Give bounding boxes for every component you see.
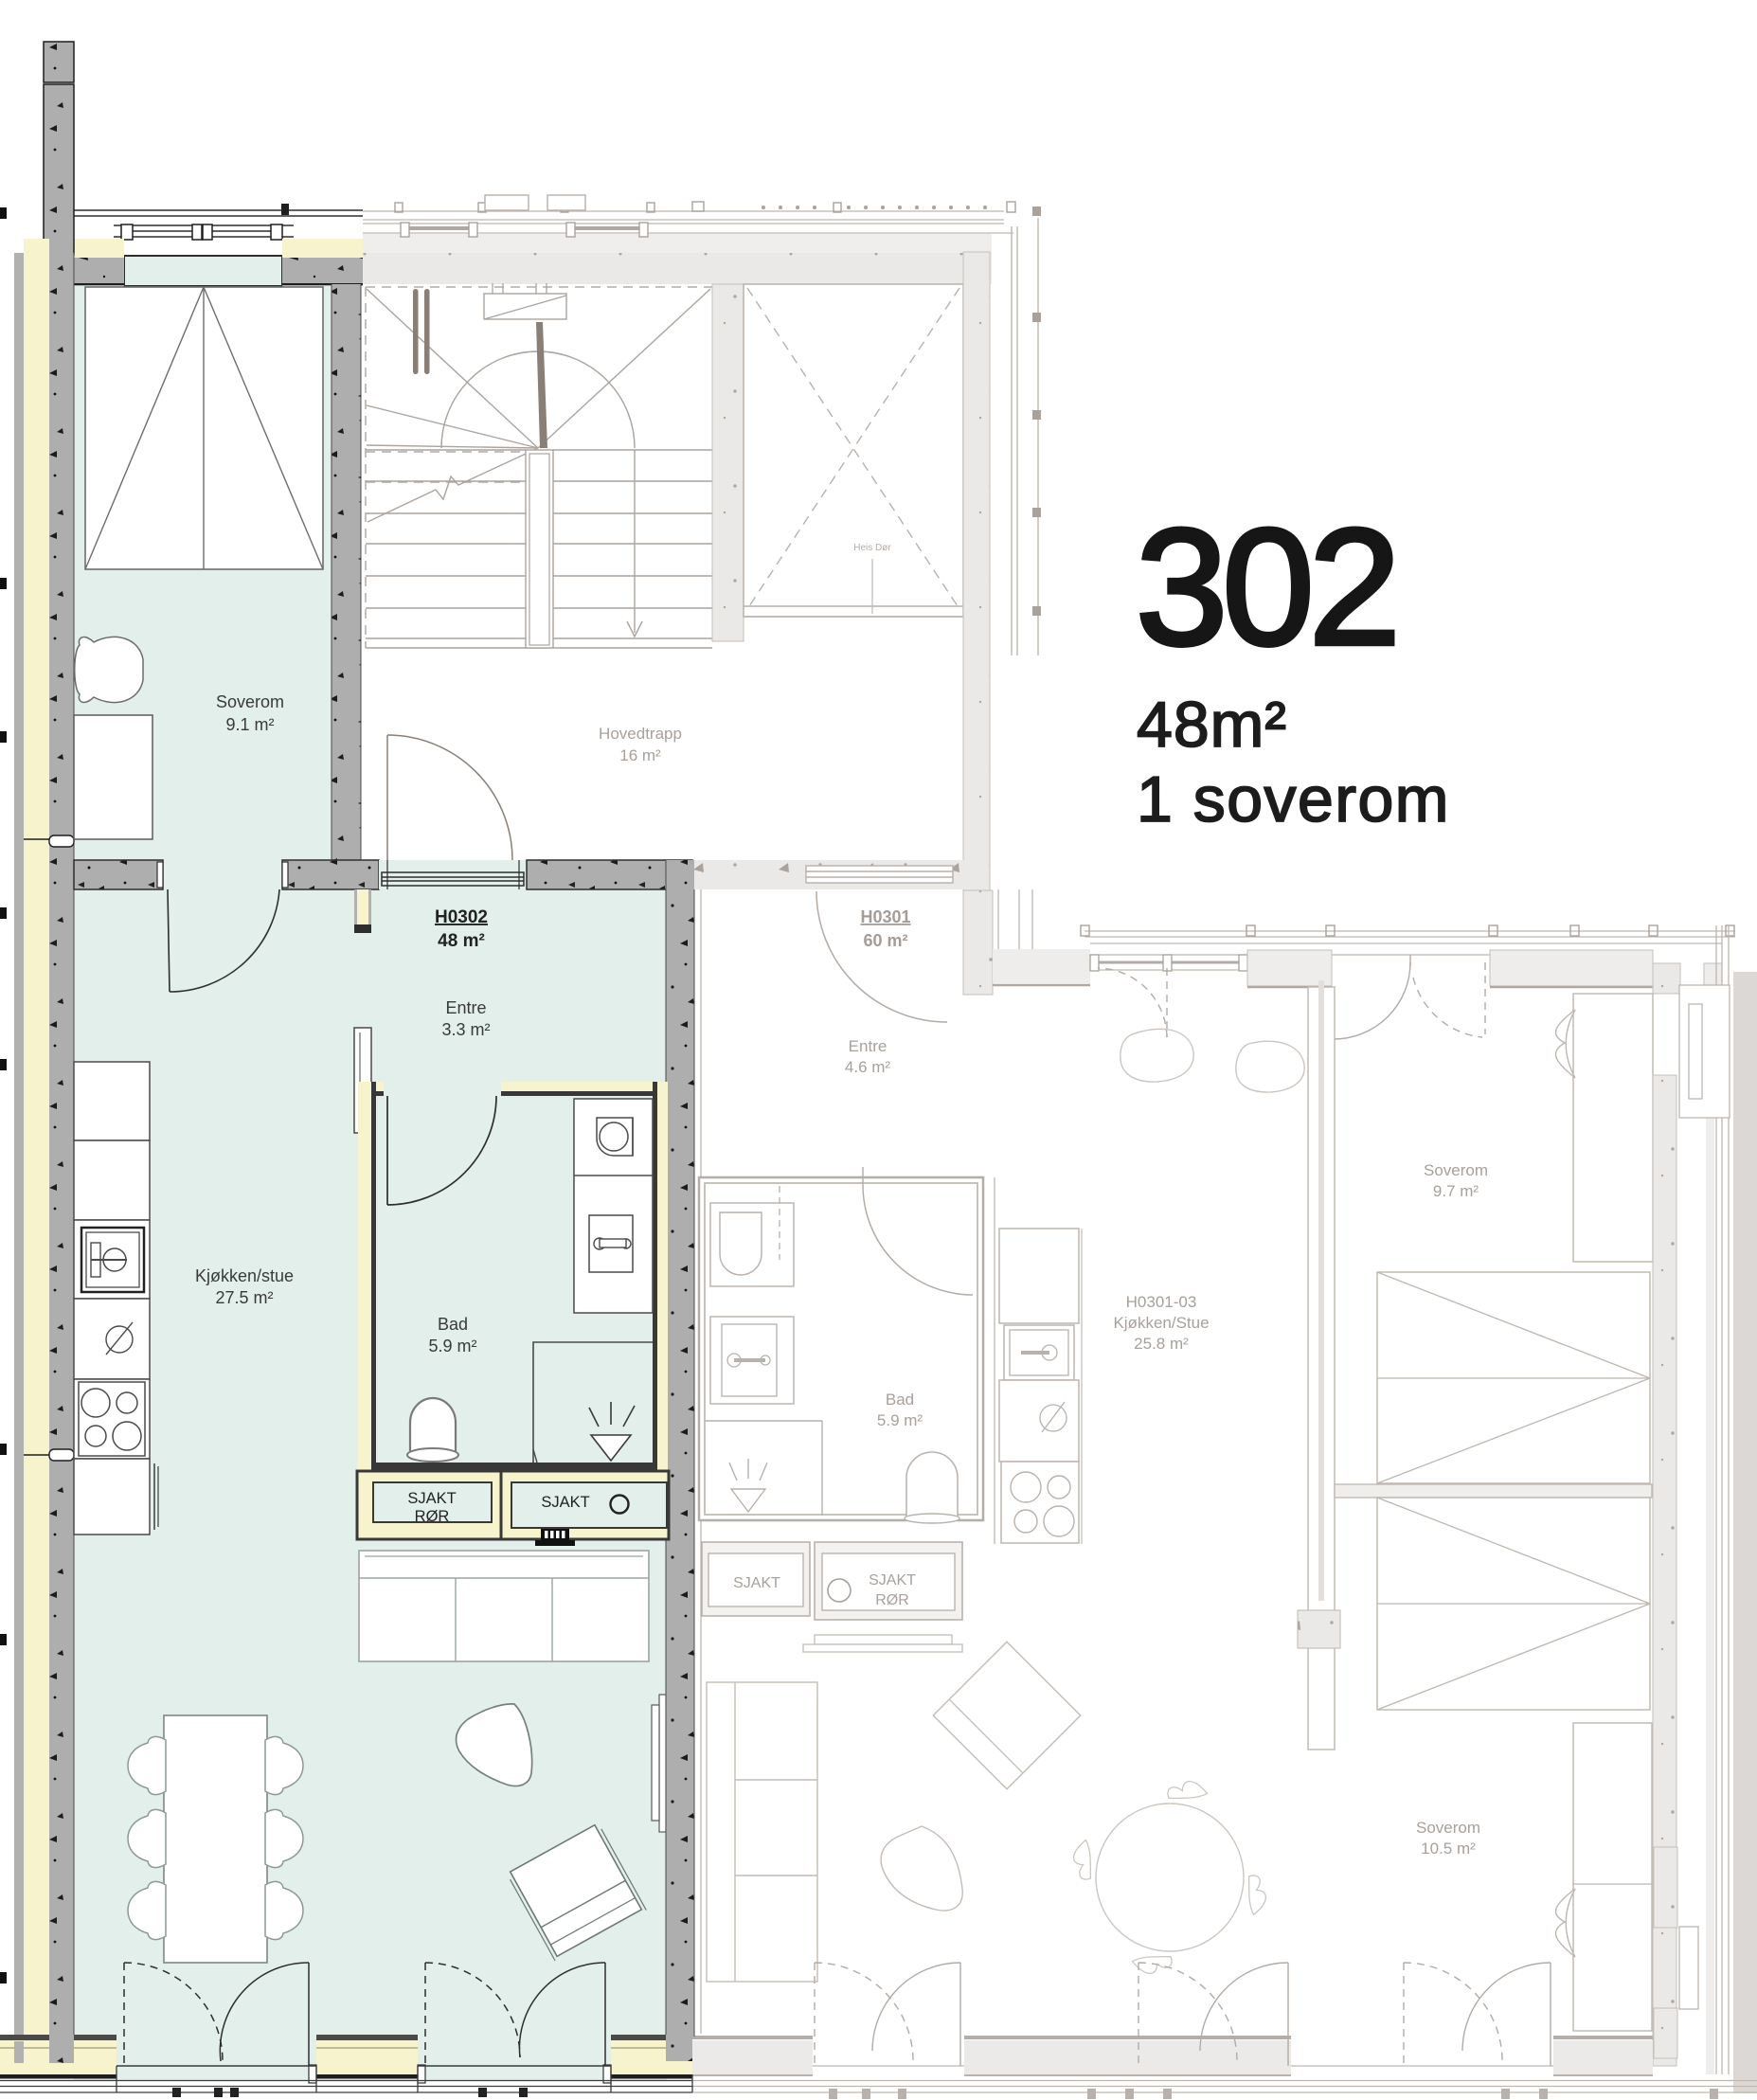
svg-text:H0301: H0301: [860, 907, 910, 926]
svg-text:SJAKT: SJAKT: [869, 1572, 916, 1588]
svg-text:48m²: 48m²: [1137, 689, 1287, 761]
svg-text:27.5 m²: 27.5 m²: [215, 1288, 273, 1307]
svg-text:9.1 m²: 9.1 m²: [225, 715, 274, 734]
svg-text:60 m²: 60 m²: [863, 931, 907, 950]
svg-text:5.9 m²: 5.9 m²: [428, 1337, 476, 1355]
svg-text:Kjøkken/stue: Kjøkken/stue: [195, 1266, 294, 1285]
svg-text:48 m²: 48 m²: [438, 931, 485, 951]
svg-text:Soverom: Soverom: [1424, 1161, 1488, 1179]
svg-text:25.8 m²: 25.8 m²: [1134, 1335, 1189, 1353]
svg-text:Entre: Entre: [849, 1037, 887, 1055]
svg-text:5.9 m²: 5.9 m²: [877, 1411, 923, 1429]
svg-text:Soverom: Soverom: [1416, 1819, 1480, 1837]
svg-text:SJAKT: SJAKT: [733, 1575, 780, 1591]
svg-text:RØR: RØR: [875, 1592, 909, 1608]
svg-text:4.6 m²: 4.6 m²: [845, 1058, 891, 1076]
svg-text:SJAKT: SJAKT: [541, 1494, 589, 1511]
svg-text:Entre: Entre: [445, 998, 486, 1017]
svg-text:Kjøkken/Stue: Kjøkken/Stue: [1113, 1314, 1209, 1332]
svg-text:1 soverom: 1 soverom: [1137, 763, 1450, 835]
svg-text:H0302: H0302: [435, 907, 488, 927]
svg-text:H0301-03: H0301-03: [1126, 1293, 1197, 1311]
svg-text:302: 302: [1136, 495, 1395, 680]
svg-text:SJAKT: SJAKT: [407, 1490, 456, 1507]
svg-text:3.3 m²: 3.3 m²: [441, 1020, 490, 1039]
svg-text:9.7 m²: 9.7 m²: [1433, 1182, 1479, 1200]
svg-text:10.5 m²: 10.5 m²: [1421, 1840, 1476, 1858]
svg-text:Soverom: Soverom: [216, 692, 284, 711]
svg-text:Heis Dør: Heis Dør: [853, 543, 891, 553]
svg-text:16 m²: 16 m²: [619, 746, 661, 764]
svg-text:Bad: Bad: [438, 1315, 468, 1334]
svg-text:Hovedtrapp: Hovedtrapp: [599, 725, 682, 743]
svg-text:Bad: Bad: [886, 1391, 914, 1409]
svg-text:RØR: RØR: [415, 1508, 450, 1525]
